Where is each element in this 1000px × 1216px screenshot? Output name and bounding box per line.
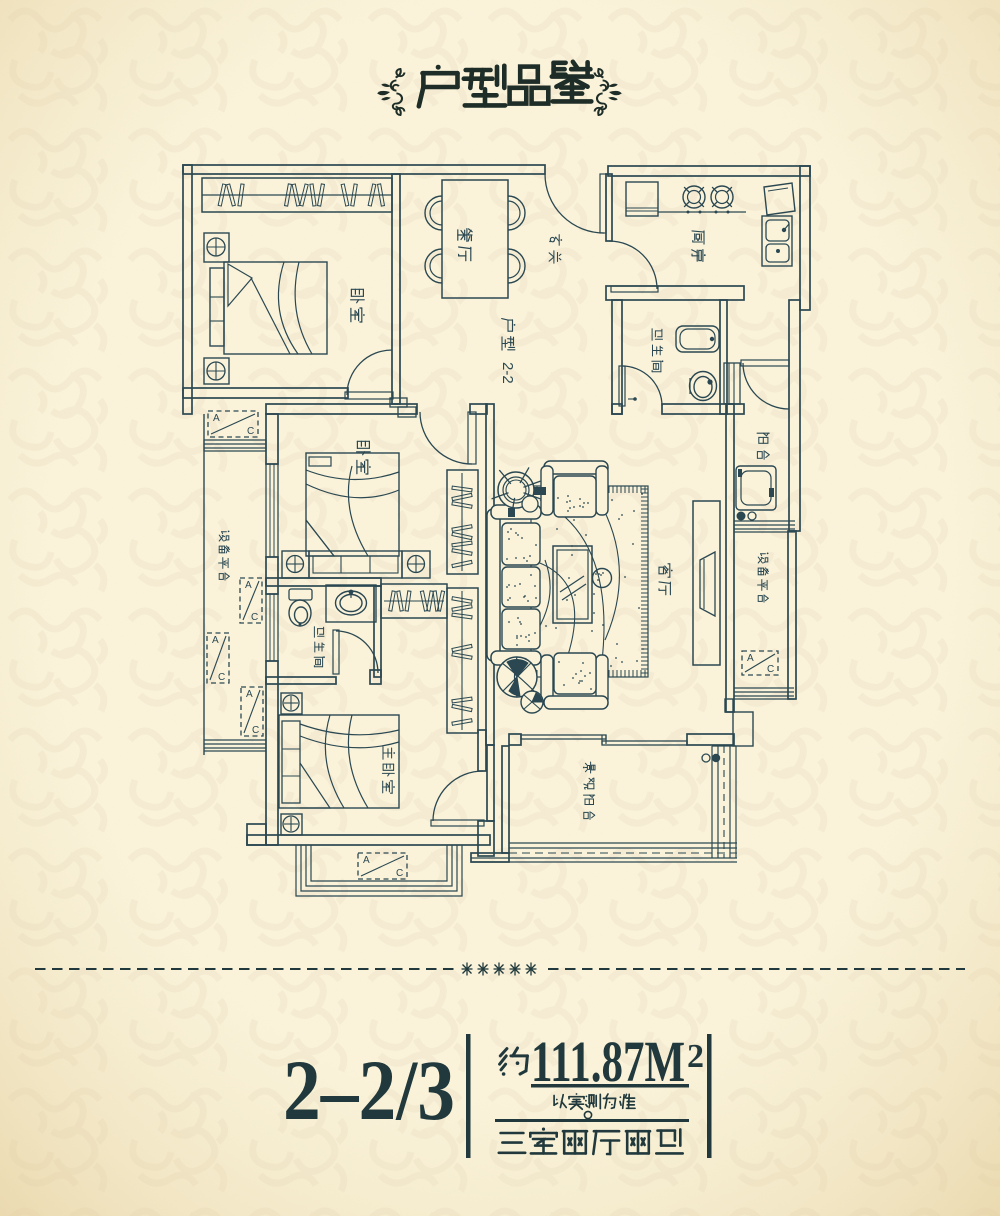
svg-text:C: C xyxy=(396,868,403,879)
svg-text:A: A xyxy=(747,653,754,664)
svg-text:A: A xyxy=(213,413,220,424)
svg-text:C: C xyxy=(252,725,259,736)
svg-text:2: 2 xyxy=(687,1038,704,1075)
svg-text:A: A xyxy=(212,635,219,646)
svg-text:A: A xyxy=(363,855,370,866)
svg-text:2-2: 2-2 xyxy=(499,362,516,384)
svg-text:A: A xyxy=(245,580,252,591)
svg-text:A: A xyxy=(246,689,253,700)
svg-text:C: C xyxy=(247,426,254,437)
svg-text:C: C xyxy=(767,664,774,675)
svg-text:2–2/3: 2–2/3 xyxy=(283,1042,455,1138)
svg-text:C: C xyxy=(218,672,225,683)
svg-text:C: C xyxy=(251,612,258,623)
